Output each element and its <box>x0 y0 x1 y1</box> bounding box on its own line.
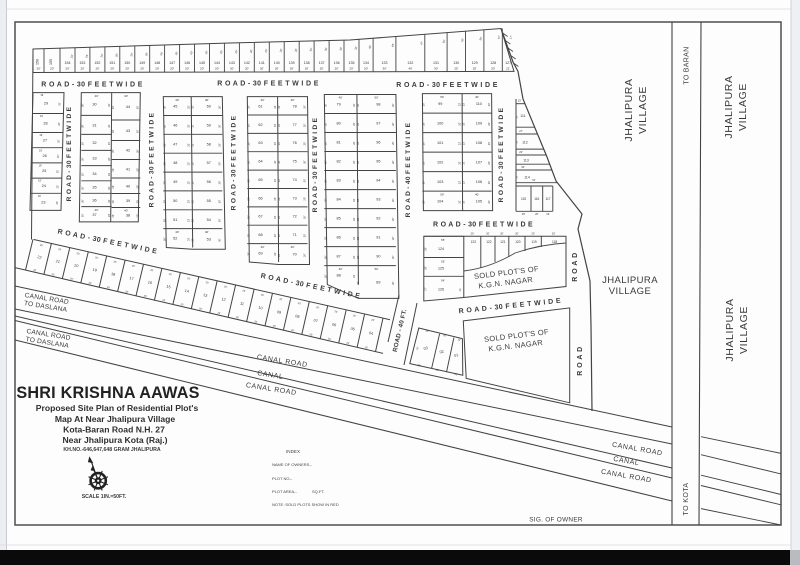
svg-text:121: 121 <box>500 240 506 244</box>
svg-text:20': 20' <box>462 141 465 145</box>
svg-text:25: 25 <box>42 169 46 173</box>
svg-text:16': 16' <box>546 212 550 216</box>
svg-text:20': 20' <box>424 247 428 251</box>
svg-text:20': 20' <box>81 186 85 190</box>
svg-text:100: 100 <box>437 121 443 125</box>
svg-text:20': 20' <box>247 142 251 146</box>
svg-text:40': 40' <box>175 98 179 102</box>
svg-text:20': 20' <box>324 217 328 221</box>
svg-text:19': 19' <box>39 165 43 168</box>
svg-text:20': 20' <box>491 67 495 71</box>
svg-text:20': 20' <box>535 212 539 216</box>
svg-text:20': 20' <box>187 143 190 147</box>
svg-text:40': 40' <box>124 209 128 213</box>
svg-text:20': 20' <box>57 169 60 173</box>
svg-text:123: 123 <box>471 240 477 244</box>
svg-text:20': 20' <box>191 162 194 166</box>
svg-text:20': 20' <box>353 103 356 107</box>
svg-text:12: 12 <box>221 297 226 302</box>
svg-text:70: 70 <box>292 253 296 257</box>
svg-text:137: 137 <box>319 61 325 65</box>
svg-text:72: 72 <box>292 215 296 219</box>
svg-text:93: 93 <box>376 198 380 202</box>
svg-text:107: 107 <box>476 160 482 164</box>
svg-text:132: 132 <box>407 61 413 65</box>
svg-text:20': 20' <box>163 143 167 147</box>
svg-text:TO KOTA: TO KOTA <box>683 483 690 516</box>
svg-text:PLOT AREA--: PLOT AREA-- <box>272 489 297 494</box>
svg-text:40': 40' <box>521 165 525 169</box>
svg-text:20': 20' <box>458 122 461 126</box>
svg-text:59: 59 <box>207 124 211 128</box>
svg-text:20': 20' <box>274 178 277 182</box>
svg-text:52: 52 <box>173 237 177 241</box>
svg-text:20': 20' <box>274 142 277 146</box>
svg-text:20': 20' <box>247 123 251 127</box>
svg-text:20': 20' <box>305 67 309 71</box>
svg-text:20': 20' <box>218 124 222 128</box>
svg-text:125: 125 <box>438 267 444 271</box>
svg-text:20': 20' <box>125 67 129 71</box>
svg-text:109: 109 <box>476 121 482 125</box>
svg-text:40': 40' <box>95 208 99 212</box>
svg-text:115: 115 <box>521 197 526 201</box>
svg-text:20': 20' <box>462 200 465 204</box>
svg-text:20': 20' <box>247 105 251 109</box>
svg-text:77: 77 <box>292 123 296 127</box>
svg-text:20': 20' <box>110 67 114 71</box>
svg-text:R O A D - 30 F E E T W I D E: R O A D - 30 F E E T W I D E <box>66 106 73 201</box>
svg-text:20': 20' <box>278 253 281 257</box>
svg-text:40': 40' <box>339 267 343 271</box>
svg-text:R O A D: R O A D <box>577 346 584 375</box>
svg-text:30': 30' <box>383 67 387 71</box>
svg-text:50: 50 <box>173 199 177 203</box>
svg-text:112: 112 <box>522 141 528 145</box>
svg-text:85: 85 <box>336 217 340 221</box>
svg-text:87: 87 <box>336 255 340 259</box>
svg-text:20': 20' <box>58 139 61 143</box>
svg-text:126: 126 <box>438 288 444 292</box>
svg-text:20': 20' <box>191 238 194 242</box>
svg-text:JHALIPURA: JHALIPURA <box>724 298 736 361</box>
svg-text:20': 20' <box>163 181 167 185</box>
svg-text:05: 05 <box>350 327 355 332</box>
svg-text:55': 55' <box>441 238 445 242</box>
svg-text:20': 20' <box>303 123 307 127</box>
svg-text:57: 57 <box>207 161 211 165</box>
svg-text:25': 25' <box>473 67 477 71</box>
svg-text:20': 20' <box>324 198 328 202</box>
svg-text:156: 156 <box>36 59 40 65</box>
svg-text:20': 20' <box>187 105 190 109</box>
svg-text:20': 20' <box>353 122 356 126</box>
svg-text:69: 69 <box>258 251 262 255</box>
svg-text:20': 20' <box>81 172 85 176</box>
svg-text:20': 20' <box>303 160 307 164</box>
svg-text:20': 20' <box>391 103 395 107</box>
svg-text:54: 54 <box>207 218 211 222</box>
svg-text:20': 20' <box>391 236 395 240</box>
svg-text:135: 135 <box>349 61 355 65</box>
svg-text:37: 37 <box>92 213 96 217</box>
svg-text:20': 20' <box>108 124 111 128</box>
svg-text:20': 20' <box>218 162 222 166</box>
svg-text:20': 20' <box>462 102 465 106</box>
svg-text:39: 39 <box>126 199 130 203</box>
svg-text:73: 73 <box>292 196 296 200</box>
svg-text:20': 20' <box>191 199 194 203</box>
svg-text:NOTE :SOLD PLOTS SHOW IN RED: NOTE :SOLD PLOTS SHOW IN RED <box>272 502 339 507</box>
svg-text:40': 40' <box>205 98 209 102</box>
svg-text:20': 20' <box>335 67 339 71</box>
svg-text:20': 20' <box>81 103 85 107</box>
svg-text:127: 127 <box>505 61 511 65</box>
svg-text:20': 20' <box>422 161 426 165</box>
svg-text:65: 65 <box>258 178 262 182</box>
svg-text:20': 20' <box>353 141 356 145</box>
svg-text:R O A D - 30 F E E T W I D E: R O A D - 30 F E E T W I D E <box>433 222 533 229</box>
svg-text:18: 18 <box>111 272 116 277</box>
svg-text:R O A D - 40 F E E T W I D E: R O A D - 40 F E E T W I D E <box>405 122 412 217</box>
svg-text:64: 64 <box>258 160 262 164</box>
svg-text:45: 45 <box>173 105 177 109</box>
svg-text:20': 20' <box>56 185 59 189</box>
svg-text:07: 07 <box>313 318 318 323</box>
svg-text:20': 20' <box>218 218 222 222</box>
svg-text:31: 31 <box>92 124 96 128</box>
svg-text:136: 136 <box>334 61 340 65</box>
svg-text:20': 20' <box>471 232 475 236</box>
svg-text:26: 26 <box>42 154 46 158</box>
svg-text:Kota-Baran Road N.H. 27: Kota-Baran Road N.H. 27 <box>63 425 165 435</box>
svg-text:83: 83 <box>336 179 340 183</box>
svg-text:116: 116 <box>534 197 539 201</box>
svg-text:20': 20' <box>215 67 219 71</box>
svg-text:19': 19' <box>38 195 42 198</box>
svg-text:68: 68 <box>258 233 262 237</box>
svg-text:20': 20' <box>275 67 279 71</box>
svg-text:INDEX: INDEX <box>286 449 300 454</box>
svg-text:20': 20' <box>163 237 167 241</box>
svg-text:108: 108 <box>476 141 482 145</box>
svg-text:144: 144 <box>214 61 220 65</box>
svg-text:VILLAGE: VILLAGE <box>609 286 651 297</box>
svg-text:20': 20' <box>357 160 360 164</box>
svg-text:84: 84 <box>336 198 340 202</box>
svg-text:106: 106 <box>476 180 482 184</box>
svg-text:20': 20' <box>274 234 277 238</box>
svg-text:20': 20' <box>218 199 222 203</box>
svg-text:20': 20' <box>170 67 174 71</box>
svg-text:66: 66 <box>258 196 262 200</box>
svg-text:20': 20' <box>487 161 491 165</box>
svg-text:20': 20' <box>487 122 491 126</box>
svg-text:20': 20' <box>136 214 140 218</box>
svg-text:20': 20' <box>191 143 194 147</box>
svg-text:Map At Near Jhalipura Village: Map At Near Jhalipura Village <box>55 414 176 424</box>
svg-text:40': 40' <box>291 245 295 249</box>
svg-text:20': 20' <box>218 105 222 109</box>
svg-text:120: 120 <box>515 240 521 244</box>
svg-text:76: 76 <box>292 141 296 145</box>
svg-text:20': 20' <box>303 233 307 237</box>
svg-text:20': 20' <box>155 67 159 71</box>
svg-text:VILLAGE: VILLAGE <box>737 83 749 131</box>
svg-text:32: 32 <box>92 141 96 145</box>
svg-text:SHRI KRISHNA AAWAS: SHRI KRISHNA AAWAS <box>16 384 199 402</box>
svg-text:149: 149 <box>139 61 145 65</box>
svg-text:147: 147 <box>169 61 175 65</box>
svg-text:20': 20' <box>324 141 328 145</box>
svg-text:81: 81 <box>336 141 340 145</box>
svg-text:20': 20' <box>391 179 395 183</box>
svg-text:151: 151 <box>109 61 115 65</box>
svg-text:20': 20' <box>187 237 190 241</box>
svg-text:61: 61 <box>258 104 262 108</box>
svg-text:35: 35 <box>92 186 96 190</box>
svg-text:17': 17' <box>424 287 428 291</box>
svg-text:20': 20' <box>487 180 491 184</box>
svg-text:20': 20' <box>303 197 307 201</box>
svg-text:131: 131 <box>433 61 439 65</box>
svg-text:40': 40' <box>261 245 265 249</box>
svg-text:20': 20' <box>357 198 360 202</box>
svg-text:20': 20' <box>187 124 190 128</box>
svg-text:89: 89 <box>376 281 380 285</box>
svg-text:78: 78 <box>292 104 296 108</box>
svg-text:20': 20' <box>136 129 140 133</box>
svg-text:R O A D - 30 F E E T W I D E: R O A D - 30 F E E T W I D E <box>149 112 156 207</box>
svg-text:98: 98 <box>376 103 380 107</box>
svg-text:20': 20' <box>163 199 167 203</box>
svg-text:20': 20' <box>515 232 519 236</box>
svg-text:143: 143 <box>229 61 235 65</box>
svg-text:20': 20' <box>278 105 281 109</box>
svg-text:20': 20' <box>353 255 356 259</box>
svg-text:152: 152 <box>94 61 100 65</box>
svg-text:50': 50' <box>440 192 444 196</box>
svg-text:122: 122 <box>486 240 492 244</box>
svg-text:150: 150 <box>124 61 130 65</box>
svg-text:21: 21 <box>55 259 60 264</box>
svg-text:20': 20' <box>391 160 395 164</box>
svg-text:140: 140 <box>274 61 280 65</box>
svg-text:20': 20' <box>163 124 167 128</box>
svg-text:118: 118 <box>552 240 557 244</box>
svg-text:38: 38 <box>126 213 130 217</box>
svg-text:20': 20' <box>187 162 190 166</box>
svg-text:20': 20' <box>462 161 465 165</box>
svg-text:VILLAGE: VILLAGE <box>637 86 649 134</box>
svg-text:20': 20' <box>247 178 251 182</box>
svg-text:124: 124 <box>438 247 444 251</box>
svg-text:20': 20' <box>191 218 194 222</box>
svg-text:117: 117 <box>545 197 550 201</box>
svg-text:20': 20' <box>519 150 523 154</box>
svg-text:20': 20' <box>364 67 368 71</box>
svg-text:20': 20' <box>462 122 465 126</box>
svg-text:30: 30 <box>92 103 96 107</box>
svg-text:20': 20' <box>357 122 360 126</box>
svg-text:20': 20' <box>391 281 395 285</box>
svg-text:20': 20' <box>247 197 251 201</box>
svg-text:71: 71 <box>292 233 296 237</box>
svg-text:20': 20' <box>112 185 115 189</box>
svg-text:20': 20' <box>422 122 426 126</box>
svg-text:114: 114 <box>524 176 530 180</box>
svg-text:20': 20' <box>324 236 328 240</box>
svg-text:20': 20' <box>108 142 111 146</box>
svg-text:20': 20' <box>185 67 189 71</box>
svg-text:20': 20' <box>50 67 54 71</box>
svg-text:56: 56 <box>207 180 211 184</box>
svg-text:20': 20' <box>112 129 115 133</box>
svg-text:79: 79 <box>336 103 340 107</box>
svg-text:154: 154 <box>65 61 71 65</box>
svg-text:20': 20' <box>531 232 535 236</box>
svg-text:119: 119 <box>532 240 537 244</box>
svg-text:20': 20' <box>136 105 140 109</box>
svg-text:99: 99 <box>438 102 442 106</box>
svg-text:20': 20' <box>357 281 360 285</box>
svg-text:R O A D: R O A D <box>572 252 579 281</box>
svg-text:20': 20' <box>422 180 426 184</box>
svg-text:20': 20' <box>458 141 461 145</box>
svg-text:94: 94 <box>376 179 380 183</box>
svg-text:74: 74 <box>292 178 296 182</box>
svg-text:40': 40' <box>124 94 128 98</box>
svg-text:40': 40' <box>475 95 479 99</box>
svg-text:86: 86 <box>336 236 340 240</box>
svg-text:20': 20' <box>422 102 426 106</box>
svg-text:92: 92 <box>376 217 380 221</box>
svg-text:20': 20' <box>324 122 328 126</box>
svg-text:25': 25' <box>522 212 526 216</box>
svg-text:28: 28 <box>43 122 47 126</box>
svg-text:VILLAGE: VILLAGE <box>738 306 750 354</box>
svg-text:20': 20' <box>108 186 111 190</box>
svg-text:20': 20' <box>108 199 111 203</box>
svg-text:50': 50' <box>374 267 378 271</box>
svg-text:20': 20' <box>350 67 354 71</box>
svg-text:34: 34 <box>92 172 96 176</box>
svg-text:20': 20' <box>278 215 281 219</box>
svg-text:R O A D - 30 F E E T W I D E: R O A D - 30 F E E T W I D E <box>312 117 319 212</box>
svg-text:40': 40' <box>205 230 209 234</box>
svg-text:43: 43 <box>126 129 130 133</box>
svg-text:10: 10 <box>258 306 263 311</box>
svg-text:20': 20' <box>108 157 111 161</box>
svg-text:102: 102 <box>437 160 443 164</box>
svg-text:20': 20' <box>108 172 111 176</box>
svg-text:20': 20' <box>357 217 360 221</box>
svg-text:20': 20' <box>57 154 60 158</box>
svg-text:42: 42 <box>126 149 130 153</box>
svg-text:20': 20' <box>303 178 307 182</box>
svg-text:27': 27' <box>519 129 523 133</box>
svg-text:133: 133 <box>382 61 388 65</box>
svg-text:20': 20' <box>290 67 294 71</box>
svg-text:53: 53 <box>207 238 211 242</box>
svg-text:R O A D - 30 F E E T W I D E: R O A D - 30 F E E T W I D E <box>231 115 238 210</box>
svg-text:40': 40' <box>95 94 99 98</box>
svg-text:141: 141 <box>259 61 265 65</box>
svg-text:20': 20' <box>112 105 115 109</box>
svg-text:95: 95 <box>376 160 380 164</box>
svg-text:67: 67 <box>258 215 262 219</box>
svg-text:20': 20' <box>95 67 99 71</box>
svg-text:20': 20' <box>247 215 251 219</box>
svg-text:20': 20' <box>278 123 281 127</box>
svg-text:20': 20' <box>391 141 395 145</box>
svg-text:20': 20' <box>112 214 115 218</box>
svg-text:20': 20' <box>324 160 328 164</box>
svg-text:20': 20' <box>274 252 277 256</box>
svg-text:27: 27 <box>43 139 47 143</box>
svg-text:44: 44 <box>126 105 130 109</box>
svg-text:138: 138 <box>304 61 310 65</box>
svg-text:20': 20' <box>59 102 62 106</box>
svg-text:20': 20' <box>353 160 356 164</box>
svg-text:20': 20' <box>58 122 61 126</box>
svg-text:20': 20' <box>303 142 307 146</box>
svg-text:60: 60 <box>207 105 211 109</box>
svg-text:128: 128 <box>490 61 496 65</box>
svg-text:20': 20' <box>353 217 356 221</box>
svg-text:20': 20' <box>487 141 491 145</box>
svg-text:PLOT NO--: PLOT NO-- <box>272 476 293 481</box>
svg-text:20': 20' <box>218 143 222 147</box>
svg-text:91: 91 <box>376 236 380 240</box>
svg-text:46: 46 <box>173 124 177 128</box>
svg-text:40': 40' <box>475 192 479 196</box>
svg-text:20': 20' <box>324 274 328 278</box>
svg-text:20': 20' <box>391 122 395 126</box>
svg-text:40': 40' <box>175 230 179 234</box>
svg-text:20': 20' <box>357 103 360 107</box>
svg-text:40': 40' <box>408 67 412 71</box>
svg-text:111: 111 <box>520 114 525 118</box>
svg-text:20': 20' <box>487 102 491 106</box>
svg-text:20': 20' <box>163 218 167 222</box>
svg-text:104: 104 <box>437 199 443 203</box>
svg-text:TO BARAN: TO BARAN <box>684 47 691 85</box>
svg-text:40: 40 <box>126 184 130 188</box>
svg-text:50': 50' <box>374 96 378 100</box>
svg-text:20': 20' <box>458 102 461 106</box>
svg-text:20': 20' <box>112 149 115 153</box>
svg-text:20': 20' <box>324 179 328 183</box>
svg-text:20': 20' <box>357 255 360 259</box>
svg-text:20': 20' <box>247 252 251 256</box>
svg-text:40': 40' <box>261 98 265 102</box>
svg-text:49: 49 <box>173 180 177 184</box>
svg-text:20': 20' <box>353 179 356 183</box>
svg-text:20': 20' <box>353 274 356 278</box>
svg-text:20': 20' <box>245 67 249 71</box>
svg-text:142: 142 <box>244 61 250 65</box>
svg-text:51': 51' <box>532 179 536 182</box>
svg-text:82: 82 <box>336 160 340 164</box>
svg-text:40': 40' <box>339 96 343 100</box>
svg-text:20': 20' <box>187 199 190 203</box>
svg-text:19: 19 <box>92 268 97 273</box>
svg-text:51: 51 <box>173 218 177 222</box>
svg-text:20': 20' <box>163 162 167 166</box>
svg-text:134: 134 <box>363 61 369 65</box>
svg-text:153: 153 <box>79 61 85 65</box>
